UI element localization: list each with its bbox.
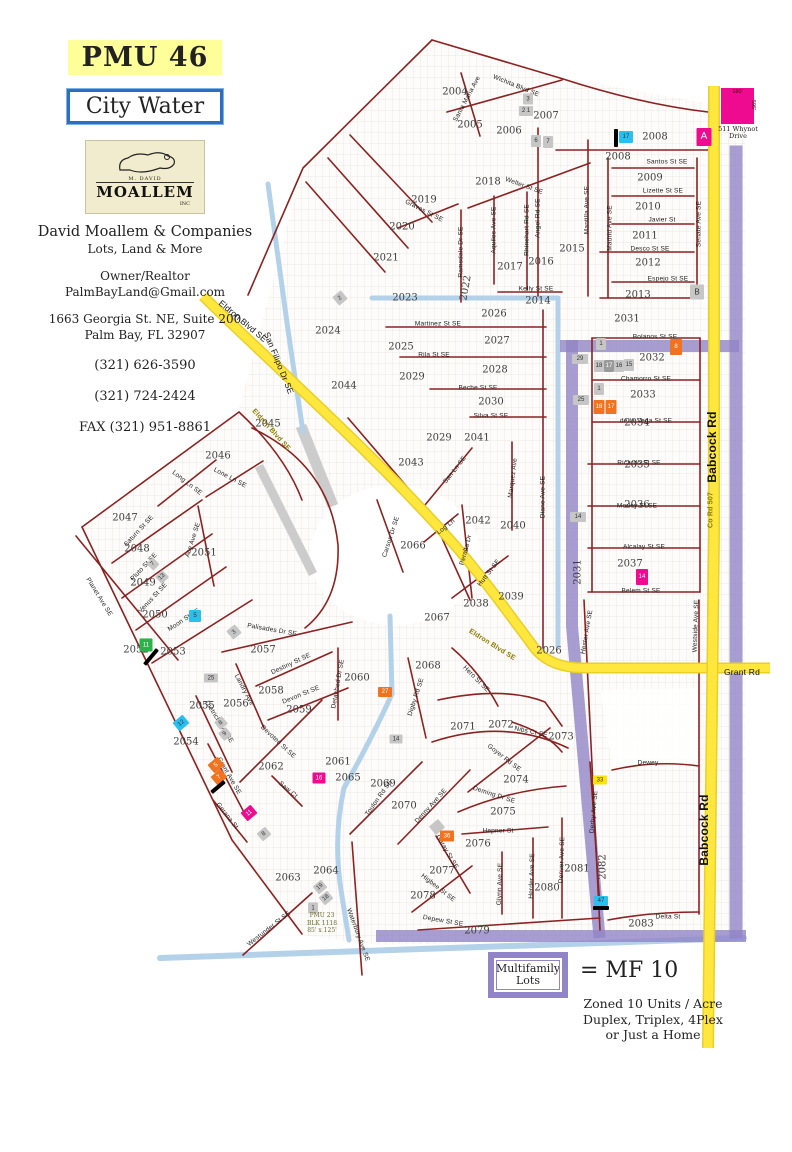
block-label: 2027 — [484, 336, 509, 347]
lot-marker[interactable]: 16 — [614, 360, 624, 372]
street-label: Espejo St SE — [648, 276, 689, 283]
lot-marker[interactable]: 29 — [572, 354, 588, 364]
block-label: 2078 — [410, 891, 435, 902]
street-label: Aquilos Ave SE — [491, 206, 498, 253]
lot-marker[interactable]: 36 — [440, 831, 454, 842]
block-label: 2033 — [630, 390, 655, 401]
lot-marker[interactable]: 14 — [390, 735, 403, 744]
block-label: 2008 — [642, 132, 667, 143]
legend-description: Zoned 10 Units / Acre Duplex, Triplex, 4… — [558, 996, 748, 1043]
street-label: Lizette St SE — [643, 188, 683, 195]
street-label: Javier St — [648, 217, 675, 224]
block-label: 2026 — [481, 309, 506, 320]
whynot-lot-box[interactable]: 180' 595' — [721, 88, 754, 124]
city-water-badge: City Water — [67, 89, 223, 124]
pmu23-line: 85' x 125' — [295, 927, 349, 935]
street-label: Morley St SE — [617, 503, 657, 510]
block-label: 2037 — [617, 559, 642, 570]
block-label: 2041 — [464, 433, 489, 444]
block-label: 2047 — [112, 513, 137, 524]
block-label: 2053 — [160, 647, 185, 658]
lot-marker[interactable]: 14 — [636, 569, 648, 585]
block-label: 2075 — [490, 807, 515, 818]
lot-marker[interactable]: 33 — [593, 776, 607, 785]
block-label: 2062 — [258, 762, 283, 773]
lot-marker[interactable] — [593, 906, 609, 910]
street-label: Belem St SE — [621, 588, 660, 595]
block-label: 2063 — [275, 873, 300, 884]
street-label: Dewey — [638, 760, 659, 767]
street-label: Madrid Ave SE — [607, 205, 614, 250]
block-label: 2029 — [399, 372, 424, 383]
block-label: 2050 — [142, 610, 167, 621]
lot-marker[interactable]: 16 — [313, 773, 326, 784]
block-label: 2030 — [478, 397, 503, 408]
pmu46-map-page: 2004200520062007200820082009201020112012… — [0, 0, 792, 1152]
block-label: 2008 — [605, 152, 630, 163]
block-label: 2046 — [205, 451, 230, 462]
lot-marker[interactable]: 17 — [619, 131, 633, 143]
block-label: 2010 — [635, 202, 660, 213]
block-label: 2029 — [426, 433, 451, 444]
block-label: 2006 — [496, 126, 521, 137]
block-label: 2044 — [331, 381, 356, 392]
block-label: 2068 — [415, 661, 440, 672]
legend-mf10: = MF 10 — [580, 958, 678, 983]
lot-marker[interactable]: 6 — [531, 135, 541, 147]
street-label: Glynn Ave SE — [496, 863, 504, 906]
email-link[interactable]: PalmBayLand@Gmail.com — [30, 285, 260, 299]
block-label: 2005 — [457, 120, 482, 131]
street-label: Santos St SE — [646, 159, 687, 166]
block-label: 2039 — [498, 592, 523, 603]
open-area — [310, 485, 480, 625]
block-label: 2028 — [482, 365, 507, 376]
block-label: 2071 — [450, 722, 475, 733]
multifamily-lots-box: Multifamily Lots — [488, 952, 568, 998]
block-label: 2042 — [465, 516, 490, 527]
lot-marker[interactable]: 17 — [606, 400, 617, 414]
block-label: 2009 — [637, 173, 662, 184]
lion-icon — [110, 148, 180, 176]
block-label: 2007 — [533, 111, 558, 122]
street-label: Rhinehart Rd SE — [524, 204, 531, 256]
lot-marker[interactable]: 25 — [573, 395, 589, 405]
street-label: Kelly St SE — [519, 286, 554, 293]
address-line2: Palm Bay, FL 32907 — [30, 328, 260, 342]
block-label: 2043 — [398, 458, 423, 469]
page-title: PMU 46 — [68, 40, 223, 75]
street-label: Ricardo St SE — [617, 460, 660, 467]
block-label: 2020 — [389, 222, 414, 233]
lot-marker[interactable]: 8 — [670, 339, 682, 355]
lot-marker[interactable]: 15 — [624, 359, 634, 371]
lot-marker[interactable]: 18 — [594, 400, 605, 414]
road-label: Co Rd 507 — [708, 492, 715, 528]
lot-marker[interactable]: 18 — [594, 360, 604, 372]
block-label: 2080 — [534, 883, 559, 894]
pmu23-annotation: PMU 23BLK 111885' x 125' — [295, 912, 349, 935]
block-label: 2025 — [388, 342, 413, 353]
lot-marker[interactable]: 7 — [543, 136, 553, 148]
street-label: Senate Ave SE — [696, 201, 703, 247]
block-label: 2076 — [465, 839, 490, 850]
open-area-2 — [600, 688, 700, 766]
lot-marker[interactable] — [614, 129, 618, 147]
block-label: 2066 — [400, 541, 425, 552]
block-label: 2026 — [536, 646, 561, 657]
fax-number: FAX (321) 951-8861 — [30, 420, 260, 435]
block-label: 2058 — [258, 686, 283, 697]
road-label: Babcock Rd — [697, 794, 711, 865]
block-label: 2018 — [475, 177, 500, 188]
street-label: de la Vega St SE — [620, 418, 672, 425]
lot-marker[interactable]: B — [690, 285, 704, 300]
whynot-width-label: 180' — [721, 89, 754, 95]
block-label: 2016 — [528, 257, 553, 268]
block-label: 2031 — [614, 314, 639, 325]
road-label: Grant Rd — [724, 667, 760, 677]
street-label: Desco St SE — [630, 246, 669, 253]
logo-wordmark: MOALLEM — [96, 182, 193, 201]
block-label: 2073 — [548, 732, 573, 743]
block-label: 2023 — [392, 293, 417, 304]
street-label: Diane Ave SE — [540, 476, 547, 518]
company-tagline: Lots, Land & More — [30, 242, 260, 256]
owner-role: Owner/Realtor — [30, 269, 260, 283]
logo-inc: INC — [180, 201, 190, 207]
street-label: Beche St SE — [458, 385, 497, 392]
phone-secondary: (321) 724-2424 — [30, 389, 260, 404]
street-label: Hepner St — [482, 828, 513, 835]
moallem-logo: M. DAVID MOALLEM INC — [85, 140, 205, 214]
lot-marker[interactable]: 2 1 — [519, 106, 533, 116]
street-label: Angel Rd SE — [535, 198, 542, 237]
block-label: 2051 — [191, 548, 216, 559]
block-label: 2015 — [559, 244, 584, 255]
street-label: Ramsdale Dr SE — [458, 226, 465, 277]
legend-line-2: Duplex, Triplex, 4Plex — [558, 1012, 748, 1028]
lot-marker[interactable]: 1 — [594, 383, 604, 395]
block-label: 2065 — [335, 773, 360, 784]
block-label: 2054 — [173, 737, 198, 748]
block-label: 2032 — [639, 353, 664, 364]
lot-marker[interactable]: 11 — [140, 639, 153, 652]
pmu23-line: PMU 23 — [295, 912, 349, 920]
street-label: Martinez St SE — [415, 321, 461, 328]
block-label: 2072 — [488, 720, 513, 731]
block-label: 2011 — [632, 231, 657, 242]
lot-marker[interactable]: 3 — [523, 94, 533, 105]
whynot-height-label: 595' — [750, 100, 756, 110]
block-label: 2031 — [573, 559, 584, 584]
block-label: 2081 — [564, 864, 589, 875]
lot-marker[interactable]: 1 — [596, 338, 606, 350]
street-label: Silva St SE — [474, 413, 509, 420]
lot-marker[interactable]: 27 — [378, 687, 392, 697]
block-label: 2060 — [344, 673, 369, 684]
block-label: 2074 — [503, 775, 528, 786]
street-label: Alcalay St SE — [623, 544, 665, 551]
lot-marker[interactable]: 47 — [594, 896, 608, 906]
legend-line-3: or Just a Home — [558, 1027, 748, 1043]
block-label: 2013 — [625, 290, 650, 301]
block-label: 2038 — [463, 599, 488, 610]
block-label: 2012 — [635, 258, 660, 269]
block-label: 2024 — [315, 326, 340, 337]
road-label: Babcock Rd — [705, 411, 719, 482]
info-panel: PMU 46 City Water M. DAVID MOALLEM INC D… — [30, 40, 260, 435]
block-label: 2057 — [250, 645, 275, 656]
block-label: 2082 — [598, 854, 609, 879]
lot-marker[interactable]: 17 — [604, 360, 614, 372]
block-label: 2070 — [391, 801, 416, 812]
block-label: 2083 — [628, 919, 653, 930]
lot-marker[interactable]: A — [697, 128, 712, 146]
lot-marker[interactable]: 14 — [570, 512, 586, 522]
block-label: 2079 — [464, 926, 489, 937]
company-name: David Moallem & Companies — [30, 224, 260, 240]
whynot-caption: 511 Whynot Drive — [714, 126, 762, 141]
address-line1: 1663 Georgia St. NE, Suite 200 — [30, 312, 260, 326]
pmu23-line: BLK 1118 — [295, 920, 349, 928]
phone-primary: (321) 626-3590 — [30, 358, 260, 373]
street-label: Rila St SE — [418, 352, 450, 359]
street-label: Delta St — [656, 914, 681, 921]
block-label: 2059 — [286, 705, 311, 716]
block-label: 2061 — [325, 757, 350, 768]
block-label: 2017 — [497, 262, 522, 273]
street-label: Chamorro St SE — [621, 376, 671, 383]
block-label: 2021 — [373, 253, 398, 264]
block-label: 2067 — [424, 613, 449, 624]
street-label: Mantilla Ave SE — [584, 186, 591, 234]
lot-marker[interactable]: 25 — [204, 674, 218, 683]
block-label: 2064 — [313, 866, 338, 877]
block-label: 2040 — [500, 521, 525, 532]
block-label: 2014 — [525, 296, 550, 307]
legend-line-1: Zoned 10 Units / Acre — [558, 996, 748, 1012]
lot-marker[interactable]: 5 — [189, 610, 201, 622]
